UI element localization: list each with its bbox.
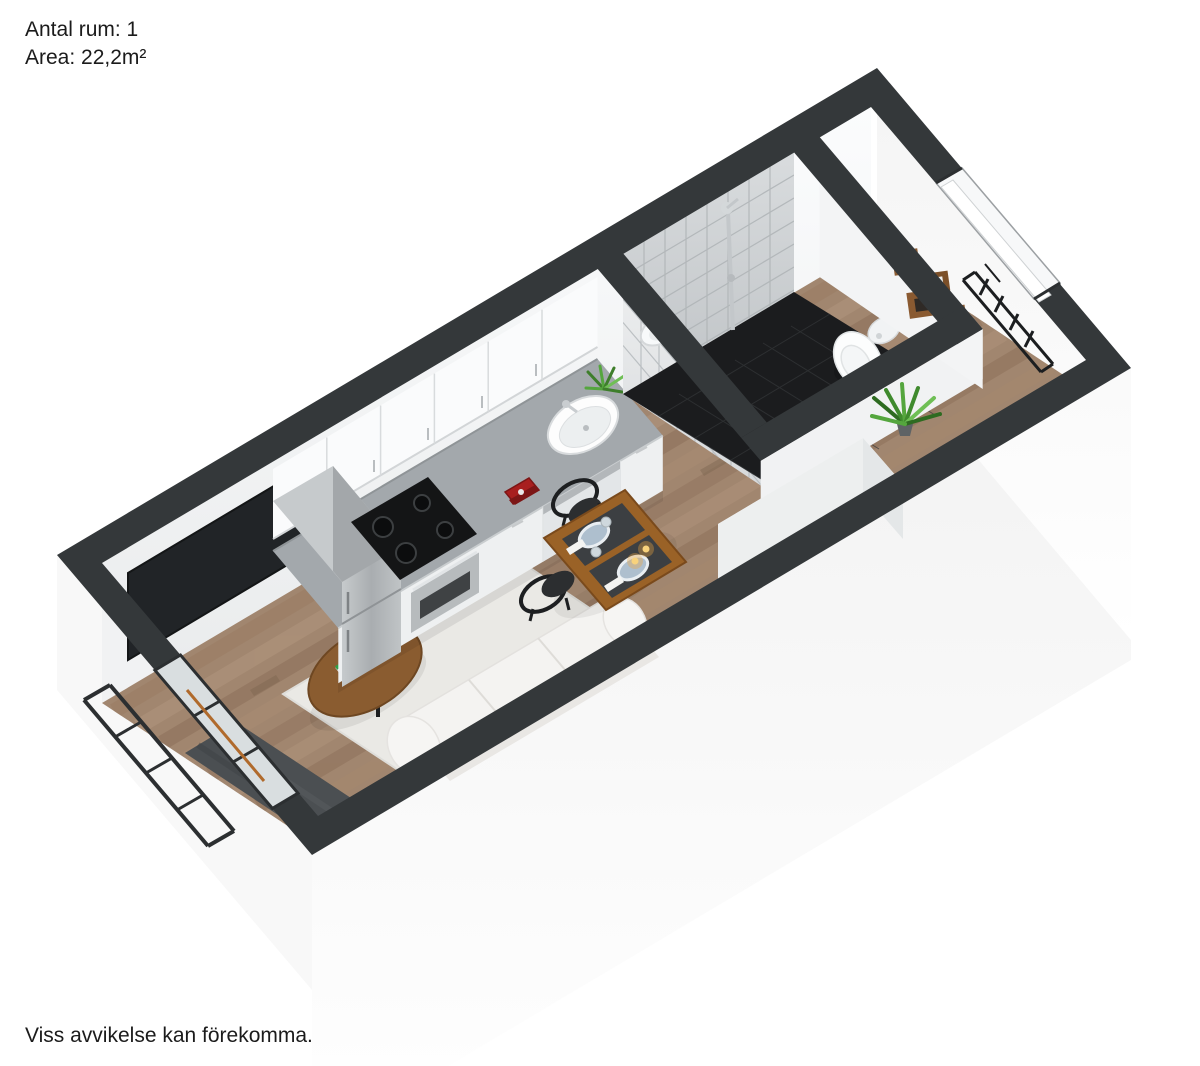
rooms-count-label: Antal rum: 1: [25, 16, 138, 44]
floorplan-page: Antal rum: 1 Area: 22,2m² Viss avvikelse…: [0, 0, 1200, 1066]
disclaimer-label: Viss avvikelse kan förekomma.: [25, 1022, 313, 1050]
floor-plan-rendering: [0, 0, 1200, 1066]
area-label: Area: 22,2m²: [25, 44, 146, 72]
